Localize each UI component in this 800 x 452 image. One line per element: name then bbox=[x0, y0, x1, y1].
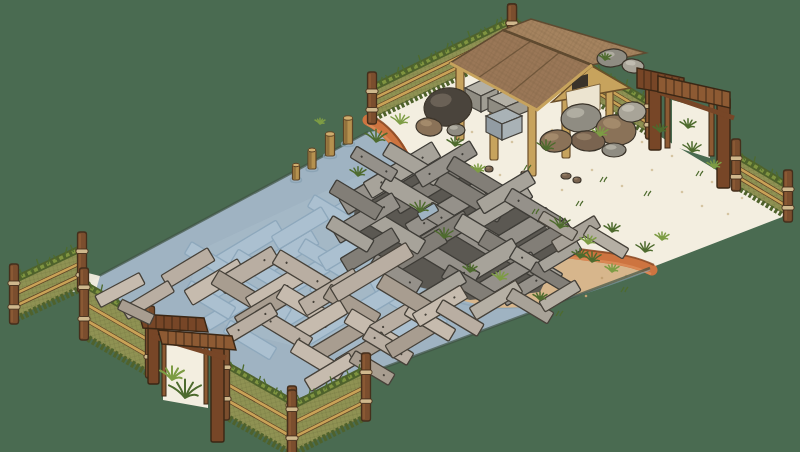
sand-speckle bbox=[651, 169, 654, 172]
fence-post-highlight bbox=[81, 270, 83, 338]
sand-speckle bbox=[499, 174, 502, 177]
sand-speckle bbox=[561, 189, 564, 192]
sand-speckle bbox=[681, 191, 684, 194]
sand-speckle bbox=[641, 141, 644, 144]
fence-post-highlight bbox=[733, 141, 735, 189]
gate-ne-frame-left bbox=[665, 92, 670, 148]
sand-speckle bbox=[621, 185, 624, 188]
sand-speckle bbox=[711, 181, 714, 184]
sand-speckle bbox=[471, 131, 474, 134]
rock[interactable] bbox=[447, 124, 465, 136]
game-scene[interactable]: Isometric hand-drawn game scene: fenced … bbox=[0, 0, 800, 452]
rock[interactable] bbox=[602, 143, 626, 157]
rope-lashing bbox=[782, 187, 794, 192]
wood-piling[interactable] bbox=[324, 132, 337, 159]
rope-lashing bbox=[76, 249, 88, 254]
rock[interactable] bbox=[485, 166, 493, 172]
rope-lashing bbox=[286, 436, 298, 441]
rope-lashing bbox=[78, 317, 90, 322]
rope-lashing bbox=[782, 206, 794, 211]
sand-speckle bbox=[727, 213, 730, 216]
rope-lashing bbox=[366, 108, 378, 113]
wood-piling[interactable] bbox=[306, 148, 318, 172]
sand-speckle bbox=[741, 197, 744, 200]
pavilion-post-front-left bbox=[528, 101, 536, 176]
gate-ne-frame-right bbox=[709, 98, 714, 156]
rope-lashing bbox=[366, 89, 378, 94]
fence-post-highlight bbox=[11, 266, 13, 322]
sand-speckle bbox=[671, 155, 674, 158]
rock[interactable] bbox=[573, 177, 581, 183]
fence-post-highlight bbox=[289, 392, 291, 452]
rope-lashing bbox=[360, 399, 372, 404]
rope-lashing bbox=[78, 285, 90, 290]
wood-piling[interactable] bbox=[342, 116, 355, 147]
game-viewport[interactable]: Isometric hand-drawn game scene: fenced … bbox=[0, 0, 800, 452]
rock[interactable] bbox=[561, 173, 571, 179]
rope-lashing bbox=[730, 156, 742, 161]
fence-post-highlight bbox=[369, 74, 371, 122]
gate-sw-post-left bbox=[148, 322, 159, 384]
sand-speckle bbox=[701, 205, 704, 208]
rope-lashing bbox=[8, 305, 20, 310]
fence-post-highlight bbox=[785, 172, 787, 220]
wood-piling[interactable] bbox=[291, 163, 302, 182]
rope-lashing bbox=[286, 407, 298, 412]
fence-post-highlight bbox=[363, 355, 365, 419]
sand-speckle bbox=[601, 277, 604, 280]
sand-speckle bbox=[591, 169, 594, 172]
rope-lashing bbox=[360, 370, 372, 375]
sand-speckle bbox=[511, 141, 514, 144]
rope-lashing bbox=[730, 175, 742, 180]
sand-speckle bbox=[585, 295, 588, 298]
rope-lashing bbox=[8, 281, 20, 286]
